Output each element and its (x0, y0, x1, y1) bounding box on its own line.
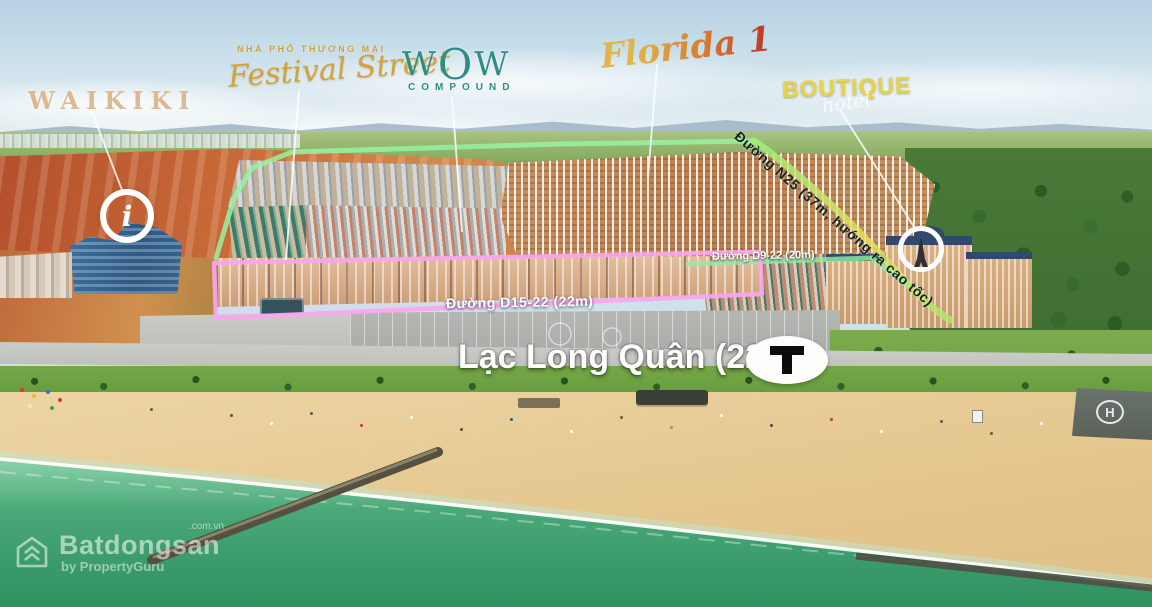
leader-waikiki (92, 112, 122, 190)
zone-label-wow-compound: COMPOUND (408, 82, 515, 93)
direction-badge (746, 336, 828, 384)
watermark-byline: by PropertyGuru (61, 559, 220, 574)
zone-label-waikiki: WAIKIKI (28, 86, 196, 115)
leader-florida (648, 64, 657, 178)
road-label-d15-22: Đường D15-22 (22m) (446, 293, 594, 312)
aerial-masterplan-photo: H (0, 0, 1152, 607)
leader-festival (286, 90, 299, 260)
watermark-brand: Batdongsan (59, 530, 220, 561)
info-circle-badge: i (100, 189, 154, 243)
watermark: Batdongsan .com.vn by PropertyGuru (14, 530, 220, 574)
leader-boutique (840, 110, 916, 230)
project-outline-green (216, 141, 754, 258)
road-label-d9-22: Đường D9-22 (20m) (712, 249, 815, 263)
watermark-domain: .com.vn (189, 521, 224, 532)
watermark-house-icon (14, 534, 50, 570)
landmark-circle-badge (898, 226, 944, 272)
tower-icon (914, 239, 928, 267)
leader-wow (452, 96, 462, 232)
